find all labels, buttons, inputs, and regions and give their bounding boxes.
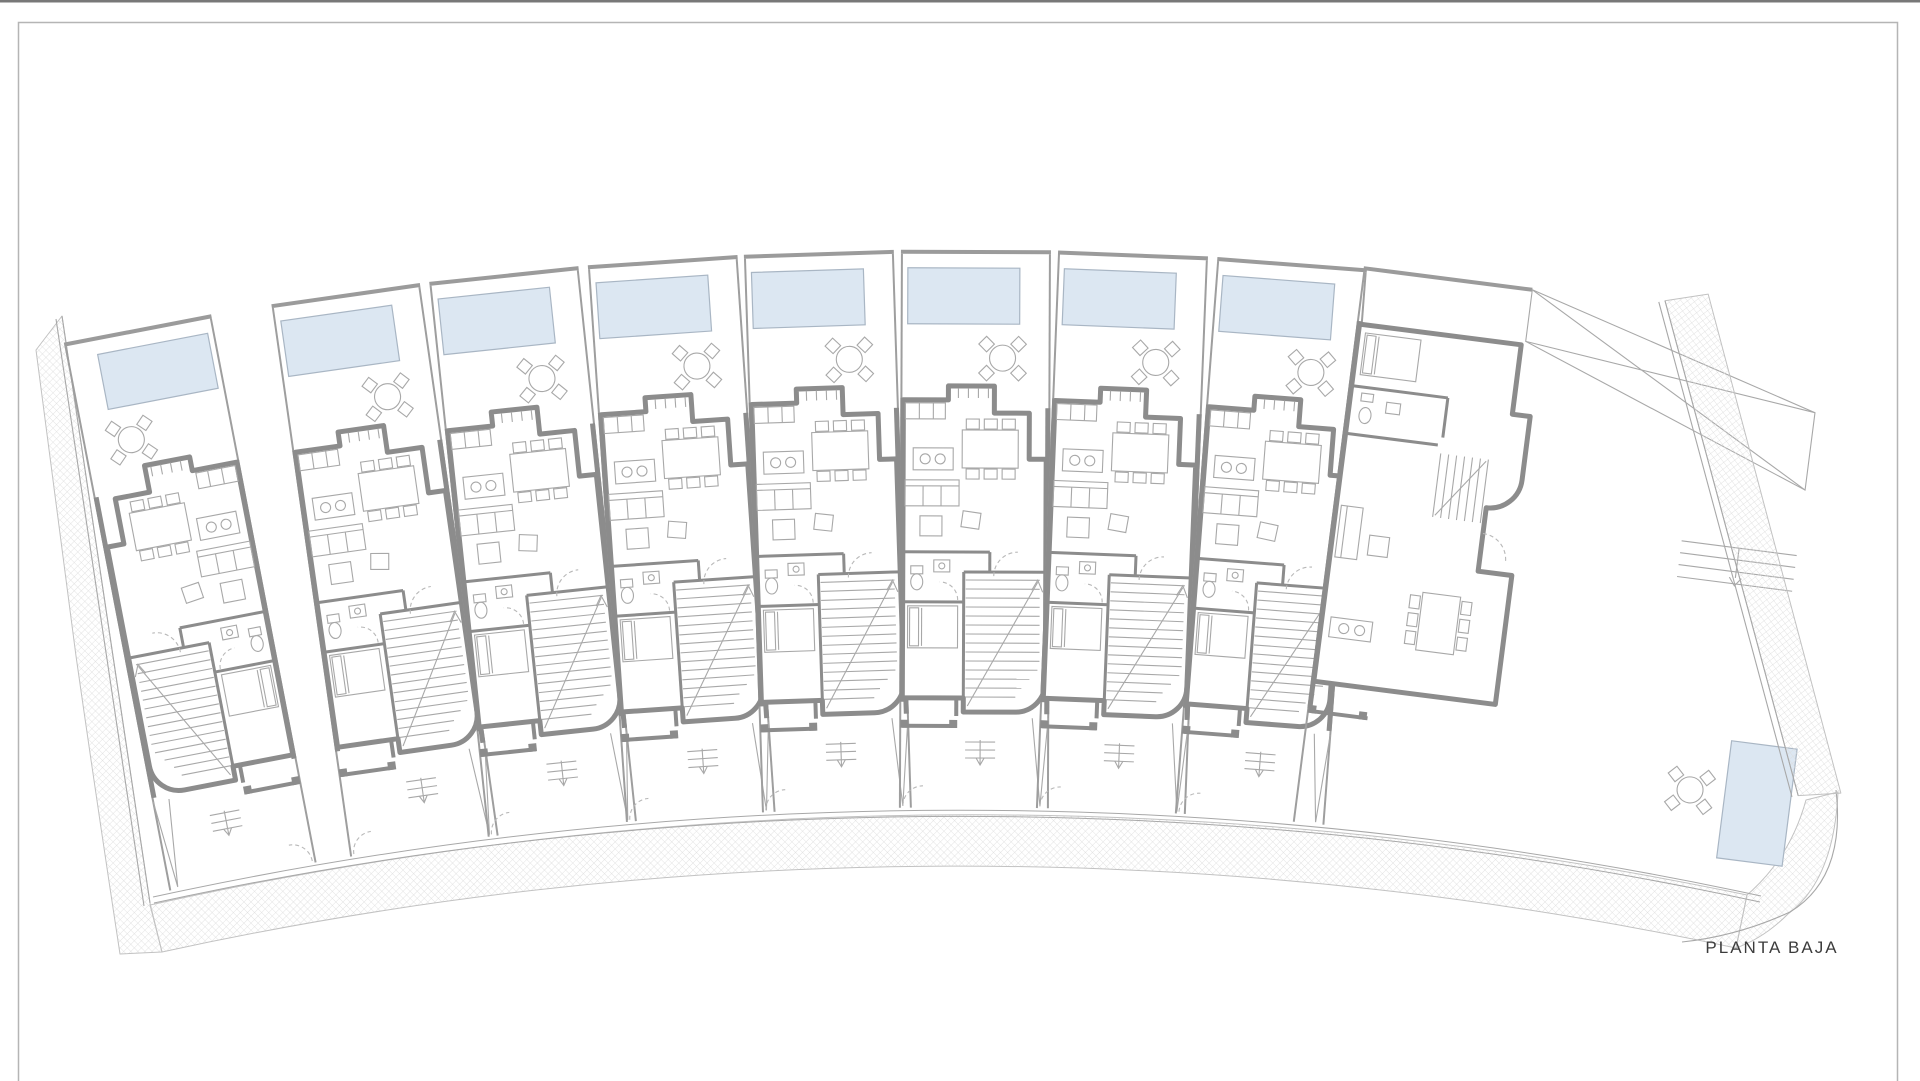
floor-plan-canvas: PLANTA BAJA <box>0 0 1920 1081</box>
window-top-edge <box>0 0 1920 3</box>
townhouse-unit-3 <box>429 266 637 837</box>
terrace-table-set <box>1664 765 1717 815</box>
plan-title: PLANTA BAJA <box>1705 938 1838 957</box>
pergola <box>1511 290 1825 490</box>
chair <box>1696 799 1711 814</box>
chair <box>1665 795 1680 810</box>
townhouse-unit-6 <box>899 250 1051 809</box>
chair <box>1668 766 1683 781</box>
townhouse-unit-9 <box>1293 250 1902 890</box>
chair <box>1700 770 1715 785</box>
sidewalk-hatch-band <box>150 815 1747 952</box>
right-boundary-hatch <box>1605 289 1902 801</box>
pool <box>1717 741 1797 866</box>
rear-garden-wall <box>1363 266 1532 292</box>
round-table <box>1676 775 1705 804</box>
floor-plan-sheet: PLANTA BAJA <box>0 0 1920 1081</box>
townhouse-row <box>64 250 1902 891</box>
house-outline <box>1314 324 1541 704</box>
